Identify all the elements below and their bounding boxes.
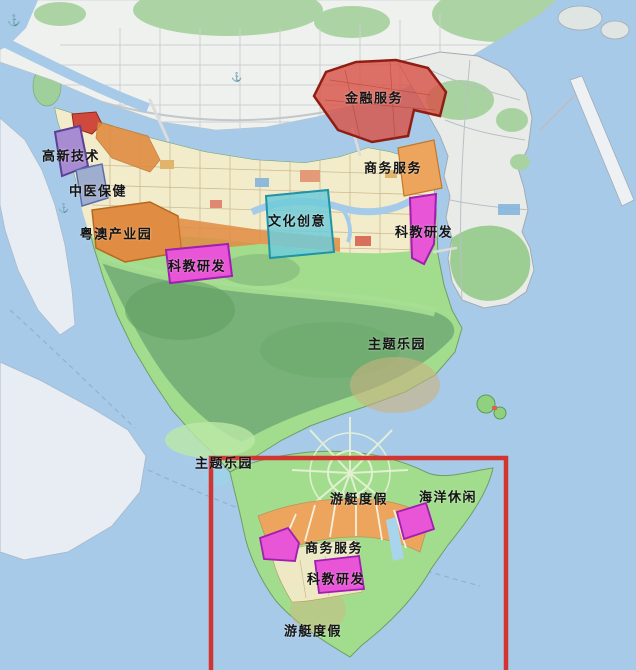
anchor-icon: ⚓ — [231, 71, 242, 83]
business-services-zone-north — [398, 140, 442, 196]
sci-edu-rd-zone-peninsula-south — [315, 556, 364, 593]
anchor-icon: ⚓ — [58, 202, 69, 214]
anchor-icon: ⚓ — [7, 14, 21, 27]
lagoon-pond — [204, 468, 230, 486]
bare-hill-patch — [350, 357, 440, 413]
planning-map-screenshot: ⚓ ⚓ ⚓ 金融服务高新技术中医保健粤澳产业园商务服务文化创意科教研发科教研发主… — [0, 0, 636, 670]
macau-blue-block — [498, 204, 520, 215]
sci-edu-rd-zone-west — [166, 244, 232, 283]
cultural-creativity-zone — [266, 190, 334, 258]
tcm-healthcare-zone — [76, 164, 108, 206]
wetland — [165, 422, 255, 458]
planning-map: ⚓ ⚓ ⚓ — [0, 0, 636, 670]
